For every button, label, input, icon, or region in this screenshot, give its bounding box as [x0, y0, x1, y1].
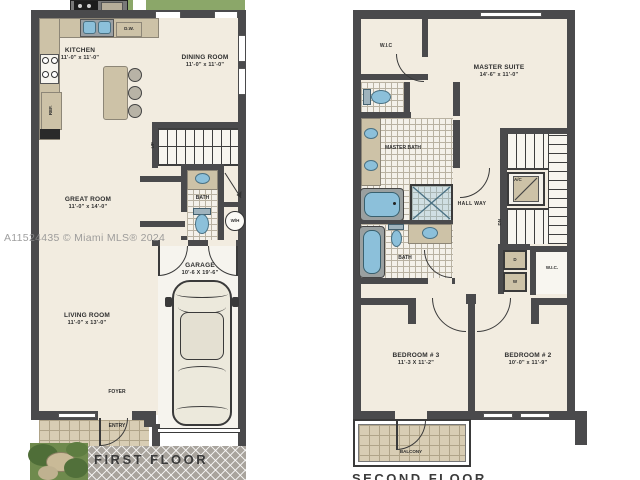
wh-closet-wall [224, 202, 246, 207]
stairs-return-run [548, 134, 567, 244]
bath-door-gap [428, 278, 452, 284]
grill-burner [78, 4, 82, 8]
entry-label: ENTRY [100, 424, 134, 430]
sink-basin [98, 21, 111, 34]
room-name: MASTER SUITE [470, 64, 528, 72]
wall-top-left [31, 10, 146, 18]
stool [128, 86, 142, 100]
tub-drain [393, 202, 396, 205]
toilet-tank [363, 89, 371, 105]
car-roof [180, 312, 224, 360]
room-dims: 10'-0" x 11'-9" [502, 360, 554, 367]
closet-wall [140, 221, 185, 227]
room-dims: 14'-6" x 11'-0" [470, 72, 528, 79]
bath-label: BATH [187, 196, 218, 202]
hall-wall-stub [453, 120, 460, 168]
living-room-label: LIVING ROOM 11'-0" x 13'-0" [60, 312, 114, 326]
window [480, 12, 542, 17]
pantry-dark [40, 129, 60, 139]
stairs-up-label: UP [151, 140, 156, 150]
room-name: GARAGE [176, 262, 224, 270]
stove-burner [51, 71, 58, 78]
shower-x-mark [410, 184, 453, 222]
car-mirror [232, 297, 239, 307]
window [483, 413, 513, 418]
bedroom-wall-right-seg [533, 298, 574, 305]
wc-wall-right [404, 82, 410, 112]
room-name: LIVING ROOM [60, 312, 114, 320]
wic-upper-label: W.I.C [368, 44, 404, 50]
car-hood-line [176, 290, 228, 298]
dryer-label: D [503, 258, 527, 263]
water-heater-label: W/H [225, 219, 245, 224]
stove-burner [42, 57, 49, 64]
bath-label: BATH [390, 256, 420, 262]
grill-burner [87, 4, 91, 8]
room-name: BEDROOM # 3 [390, 352, 442, 360]
window [239, 68, 245, 95]
stairs-lower-run [507, 208, 551, 244]
room-dims: 11'-0" x 14'-0" [62, 204, 114, 211]
closet-wall [140, 176, 185, 182]
room-name: BEDROOM # 2 [502, 352, 554, 360]
window [239, 35, 245, 62]
wall-left [31, 10, 39, 418]
hall-wall-stub [453, 82, 460, 116]
second-floor-plan: W.I.C MASTER SUITE 14'-6" x 11'-0" MASTE… [340, 0, 640, 480]
room-name: GREAT ROOM [62, 196, 114, 204]
rock [38, 466, 58, 480]
bedroom2-label: BEDROOM # 2 10'-0" x 11'-9" [502, 352, 554, 366]
balcony-label: BALCONY [392, 450, 430, 455]
kitchen-island [103, 66, 128, 120]
vanity-sink [364, 128, 378, 139]
stair-wall-left [500, 128, 507, 250]
bedroom-divider-wall [468, 304, 475, 417]
door-leaf [99, 418, 101, 446]
car-trunk-line [176, 406, 228, 414]
garage-door-line [158, 428, 240, 433]
garage-label: GARAGE 10'-6 X 19'-6" [176, 262, 224, 276]
room-dims: 11'-0" x 11'-0" [56, 55, 104, 62]
second-floor-title: SECOND FLOOR [352, 471, 487, 480]
door-center-post [466, 294, 476, 304]
foyer-label: FOYER [100, 390, 134, 396]
stair-mid-rail [158, 146, 238, 147]
toilet-bowl [371, 90, 391, 104]
bath-sink [422, 227, 438, 239]
stove-burner [42, 71, 49, 78]
bedroom-wall-stub [408, 298, 416, 324]
mls-watermark: A11524435 © Miami MLS® 2024 [4, 232, 165, 244]
room-dims: 10'-6 X 19'-6" [176, 270, 224, 277]
window [58, 413, 96, 418]
toilet-bowl [195, 214, 209, 234]
wall-right-ext [575, 411, 587, 445]
bedroom-wall-left-seg [361, 298, 409, 305]
ac-label: A/C [514, 178, 526, 183]
stair-direction-arrow [222, 170, 246, 204]
refrigerator-label: REF. [49, 97, 54, 123]
bedroom3-label: BEDROOM # 3 11'-3 X 11'-2" [390, 352, 442, 366]
wall-right [567, 10, 575, 420]
toilet-bowl [391, 230, 402, 247]
master-bath-label: MASTER BATH [385, 146, 421, 152]
bedroom-wall-stub [531, 298, 539, 324]
car-rear-window [178, 366, 226, 378]
room-dims: 11'-0" x 13'-0" [60, 320, 114, 327]
vanity-sink [364, 160, 378, 171]
room-dims: 11'-0" x 11'-0" [178, 62, 232, 69]
stairs-upper-run [507, 134, 551, 170]
master-suite-label: MASTER SUITE 14'-6" x 11'-0" [470, 64, 528, 78]
dishwasher-label: D.W. [116, 27, 142, 32]
dining-room-label: DINING ROOM 11'-0" x 11'-0" [178, 54, 232, 68]
wic-wall-right [422, 19, 428, 57]
bush [64, 458, 88, 478]
hallway-label: HALL WAY [452, 202, 492, 208]
car-mirror [165, 297, 172, 307]
door-leaf [236, 246, 238, 276]
bath-sink [195, 173, 210, 184]
washer-label: W [503, 280, 527, 285]
stairs-first-floor [158, 128, 238, 166]
bathtub [363, 230, 381, 274]
stool [128, 68, 142, 82]
window [520, 413, 550, 418]
wic-lower-label: W.I.C. [537, 266, 567, 271]
stairs-down-label: DN [498, 217, 503, 227]
room-name: DINING ROOM [178, 54, 232, 62]
sink-basin [83, 21, 96, 34]
first-floor-title: FIRST FLOOR [94, 452, 208, 467]
room-dims: 11'-3 X 11'-2" [390, 360, 442, 367]
room-name: KITCHEN [56, 47, 104, 55]
bush [66, 442, 88, 457]
floor-plan-image: D.W. REF. KITCHEN 11'-0" x 11'-0" DINING… [0, 0, 640, 480]
great-room-label: GREAT ROOM 11'-0" x 14'-0" [62, 196, 114, 210]
door-leaf [158, 246, 160, 276]
kitchen-label: KITCHEN 11'-0" x 11'-0" [56, 47, 104, 61]
stool [128, 104, 142, 118]
door-leaf [396, 420, 398, 450]
wic-lower-floor [536, 252, 567, 294]
